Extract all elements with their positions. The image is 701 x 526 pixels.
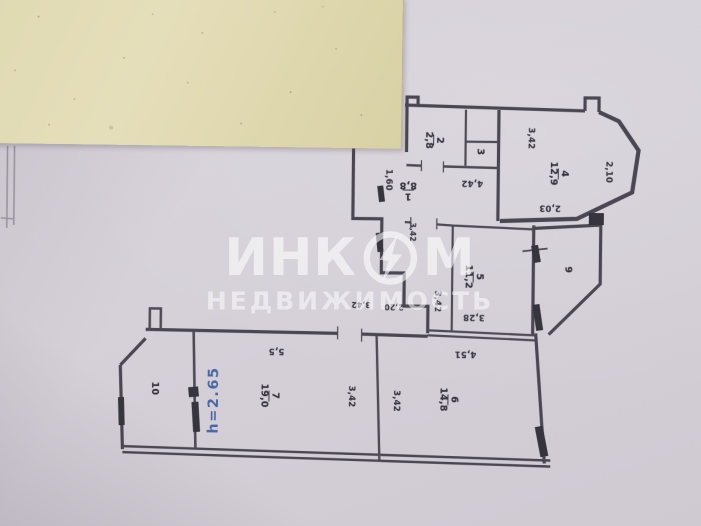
room-label-9: 9	[562, 264, 572, 275]
room-area: 19,0	[258, 383, 268, 407]
dimension-label: 2,20	[384, 302, 403, 311]
cover-paper	[0, 0, 404, 149]
dimension-label: 4,51	[454, 349, 476, 359]
room-label-10: 10	[149, 380, 159, 398]
dimension-label: 2,10	[603, 161, 613, 183]
room-label-1: 1 8,8	[399, 180, 417, 201]
room-label-7: 7 19,0	[258, 383, 279, 407]
room-number: 4	[558, 168, 569, 179]
room-number: 9	[562, 264, 572, 275]
adjacent-walls	[1, 146, 15, 228]
room-number: 3	[475, 146, 485, 157]
room-label-3: 3	[475, 146, 485, 157]
room-label-2: 2 2,8	[423, 132, 444, 150]
dimension-label: 3,42	[351, 300, 370, 309]
room-number: 5	[473, 271, 484, 282]
dimension-label: 5,5	[269, 346, 285, 356]
room-area: 2,8	[423, 132, 433, 150]
dimension-label: 3,42	[346, 386, 356, 408]
room-number: 1	[403, 190, 414, 201]
room-label-5: 5 11,2	[463, 265, 484, 289]
dimension-label: 3,42	[526, 127, 536, 149]
room-number: 7	[268, 390, 279, 401]
room-number: 2	[433, 135, 444, 146]
room-number: 6	[447, 394, 458, 405]
room-label-4: 4 12,9	[548, 161, 569, 185]
floorplan-photo: 1 8,8 2 2,8 3 4 12,9 5 11,2 6 14,8 7 19,…	[0, 0, 701, 526]
dimension-label: 3,42	[432, 290, 442, 312]
room-area: 8,8	[399, 180, 417, 190]
room-area: 12,9	[548, 161, 558, 185]
room-area: 11,2	[463, 265, 473, 289]
dimension-label: 4,42	[461, 178, 483, 188]
dimension-label: 3,28	[463, 312, 485, 322]
dimension-label: 1,60	[383, 169, 393, 191]
room-label-6: 6 14,8	[437, 387, 458, 411]
ceiling-height-note: h=2.65	[206, 366, 223, 433]
room-area: 14,8	[437, 387, 447, 411]
dimension-label: 3,42	[408, 222, 417, 241]
room-number: 10	[149, 380, 159, 398]
dimension-label: 3,42	[391, 390, 401, 412]
dimension-label: 2,03	[539, 202, 561, 212]
